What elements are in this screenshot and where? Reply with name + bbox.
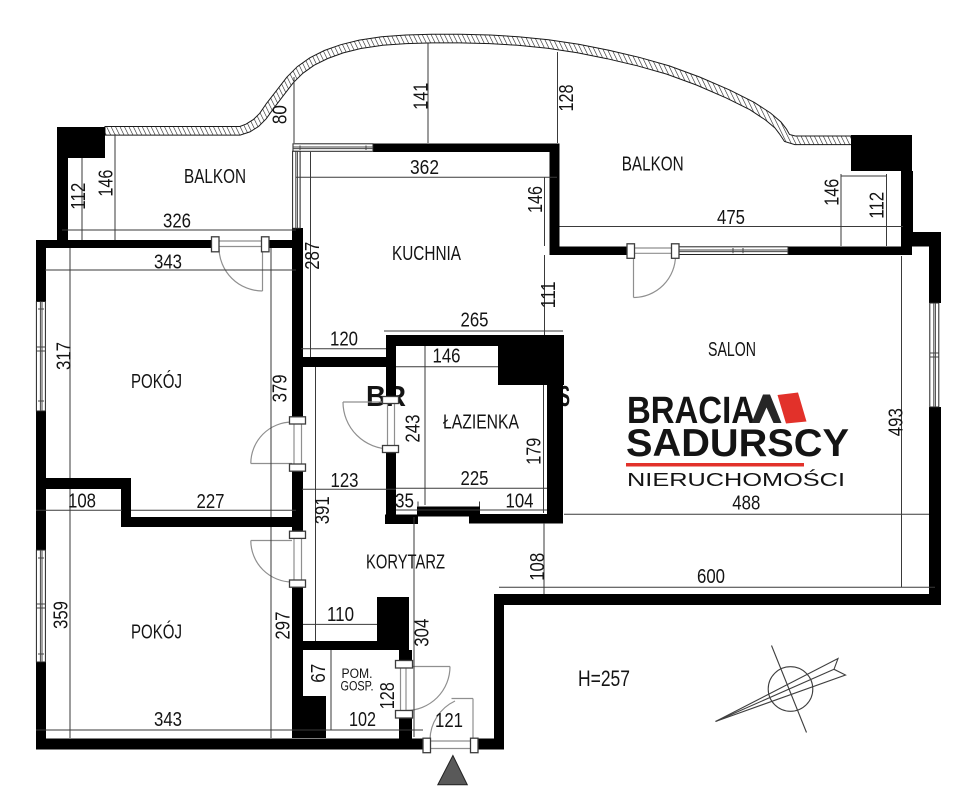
svg-text:243: 243 <box>403 415 425 443</box>
svg-text:104: 104 <box>506 491 534 513</box>
svg-text:225: 225 <box>461 468 489 490</box>
svg-text:391: 391 <box>312 496 334 524</box>
svg-text:112: 112 <box>867 192 889 219</box>
svg-text:287: 287 <box>302 242 324 270</box>
svg-text:343: 343 <box>154 252 182 274</box>
svg-text:265: 265 <box>461 310 489 332</box>
svg-text:35: 35 <box>395 491 414 513</box>
svg-text:GOSP.: GOSP. <box>341 679 374 694</box>
svg-text:326: 326 <box>163 211 191 233</box>
svg-text:304: 304 <box>412 619 434 647</box>
svg-text:ŁAZIENKA: ŁAZIENKA <box>443 411 519 434</box>
svg-text:141: 141 <box>411 83 433 110</box>
svg-text:179: 179 <box>524 438 546 465</box>
svg-text:67: 67 <box>308 664 330 683</box>
svg-text:NIERUCHOMOŚCI: NIERUCHOMOŚCI <box>627 469 845 490</box>
svg-text:362: 362 <box>410 157 439 179</box>
svg-text:359: 359 <box>51 601 73 629</box>
svg-text:112: 112 <box>68 183 90 210</box>
svg-text:KUCHNIA: KUCHNIA <box>392 242 461 265</box>
svg-text:BALKON: BALKON <box>622 153 684 176</box>
svg-text:108: 108 <box>527 553 549 581</box>
svg-text:102: 102 <box>349 709 376 731</box>
svg-text:123: 123 <box>331 470 359 492</box>
svg-text:121: 121 <box>435 710 463 732</box>
svg-text:146: 146 <box>822 179 844 206</box>
svg-text:493: 493 <box>885 408 907 436</box>
svg-text:POKÓJ: POKÓJ <box>131 370 182 393</box>
svg-text:POKÓJ: POKÓJ <box>131 621 182 644</box>
svg-text:146: 146 <box>433 346 461 368</box>
svg-text:120: 120 <box>330 329 358 351</box>
svg-text:110: 110 <box>327 604 354 626</box>
svg-text:146: 146 <box>95 170 117 197</box>
svg-text:H=257: H=257 <box>578 666 630 691</box>
svg-text:80: 80 <box>270 105 292 124</box>
svg-text:146: 146 <box>525 186 547 213</box>
svg-text:128: 128 <box>377 682 399 709</box>
svg-text:488: 488 <box>732 493 760 515</box>
svg-text:297: 297 <box>273 612 295 640</box>
svg-text:111: 111 <box>538 281 560 308</box>
svg-text:227: 227 <box>197 491 225 513</box>
svg-text:379: 379 <box>270 374 292 402</box>
svg-text:SADURSCY: SADURSCY <box>626 422 849 465</box>
svg-text:600: 600 <box>697 566 725 588</box>
svg-text:SALON: SALON <box>708 338 756 361</box>
svg-text:KORYTARZ: KORYTARZ <box>366 551 445 574</box>
svg-text:128: 128 <box>556 85 578 112</box>
svg-text:108: 108 <box>68 491 96 513</box>
svg-text:317: 317 <box>54 342 76 370</box>
svg-text:475: 475 <box>717 207 745 229</box>
svg-text:343: 343 <box>154 709 182 731</box>
svg-text:BALKON: BALKON <box>184 165 246 188</box>
